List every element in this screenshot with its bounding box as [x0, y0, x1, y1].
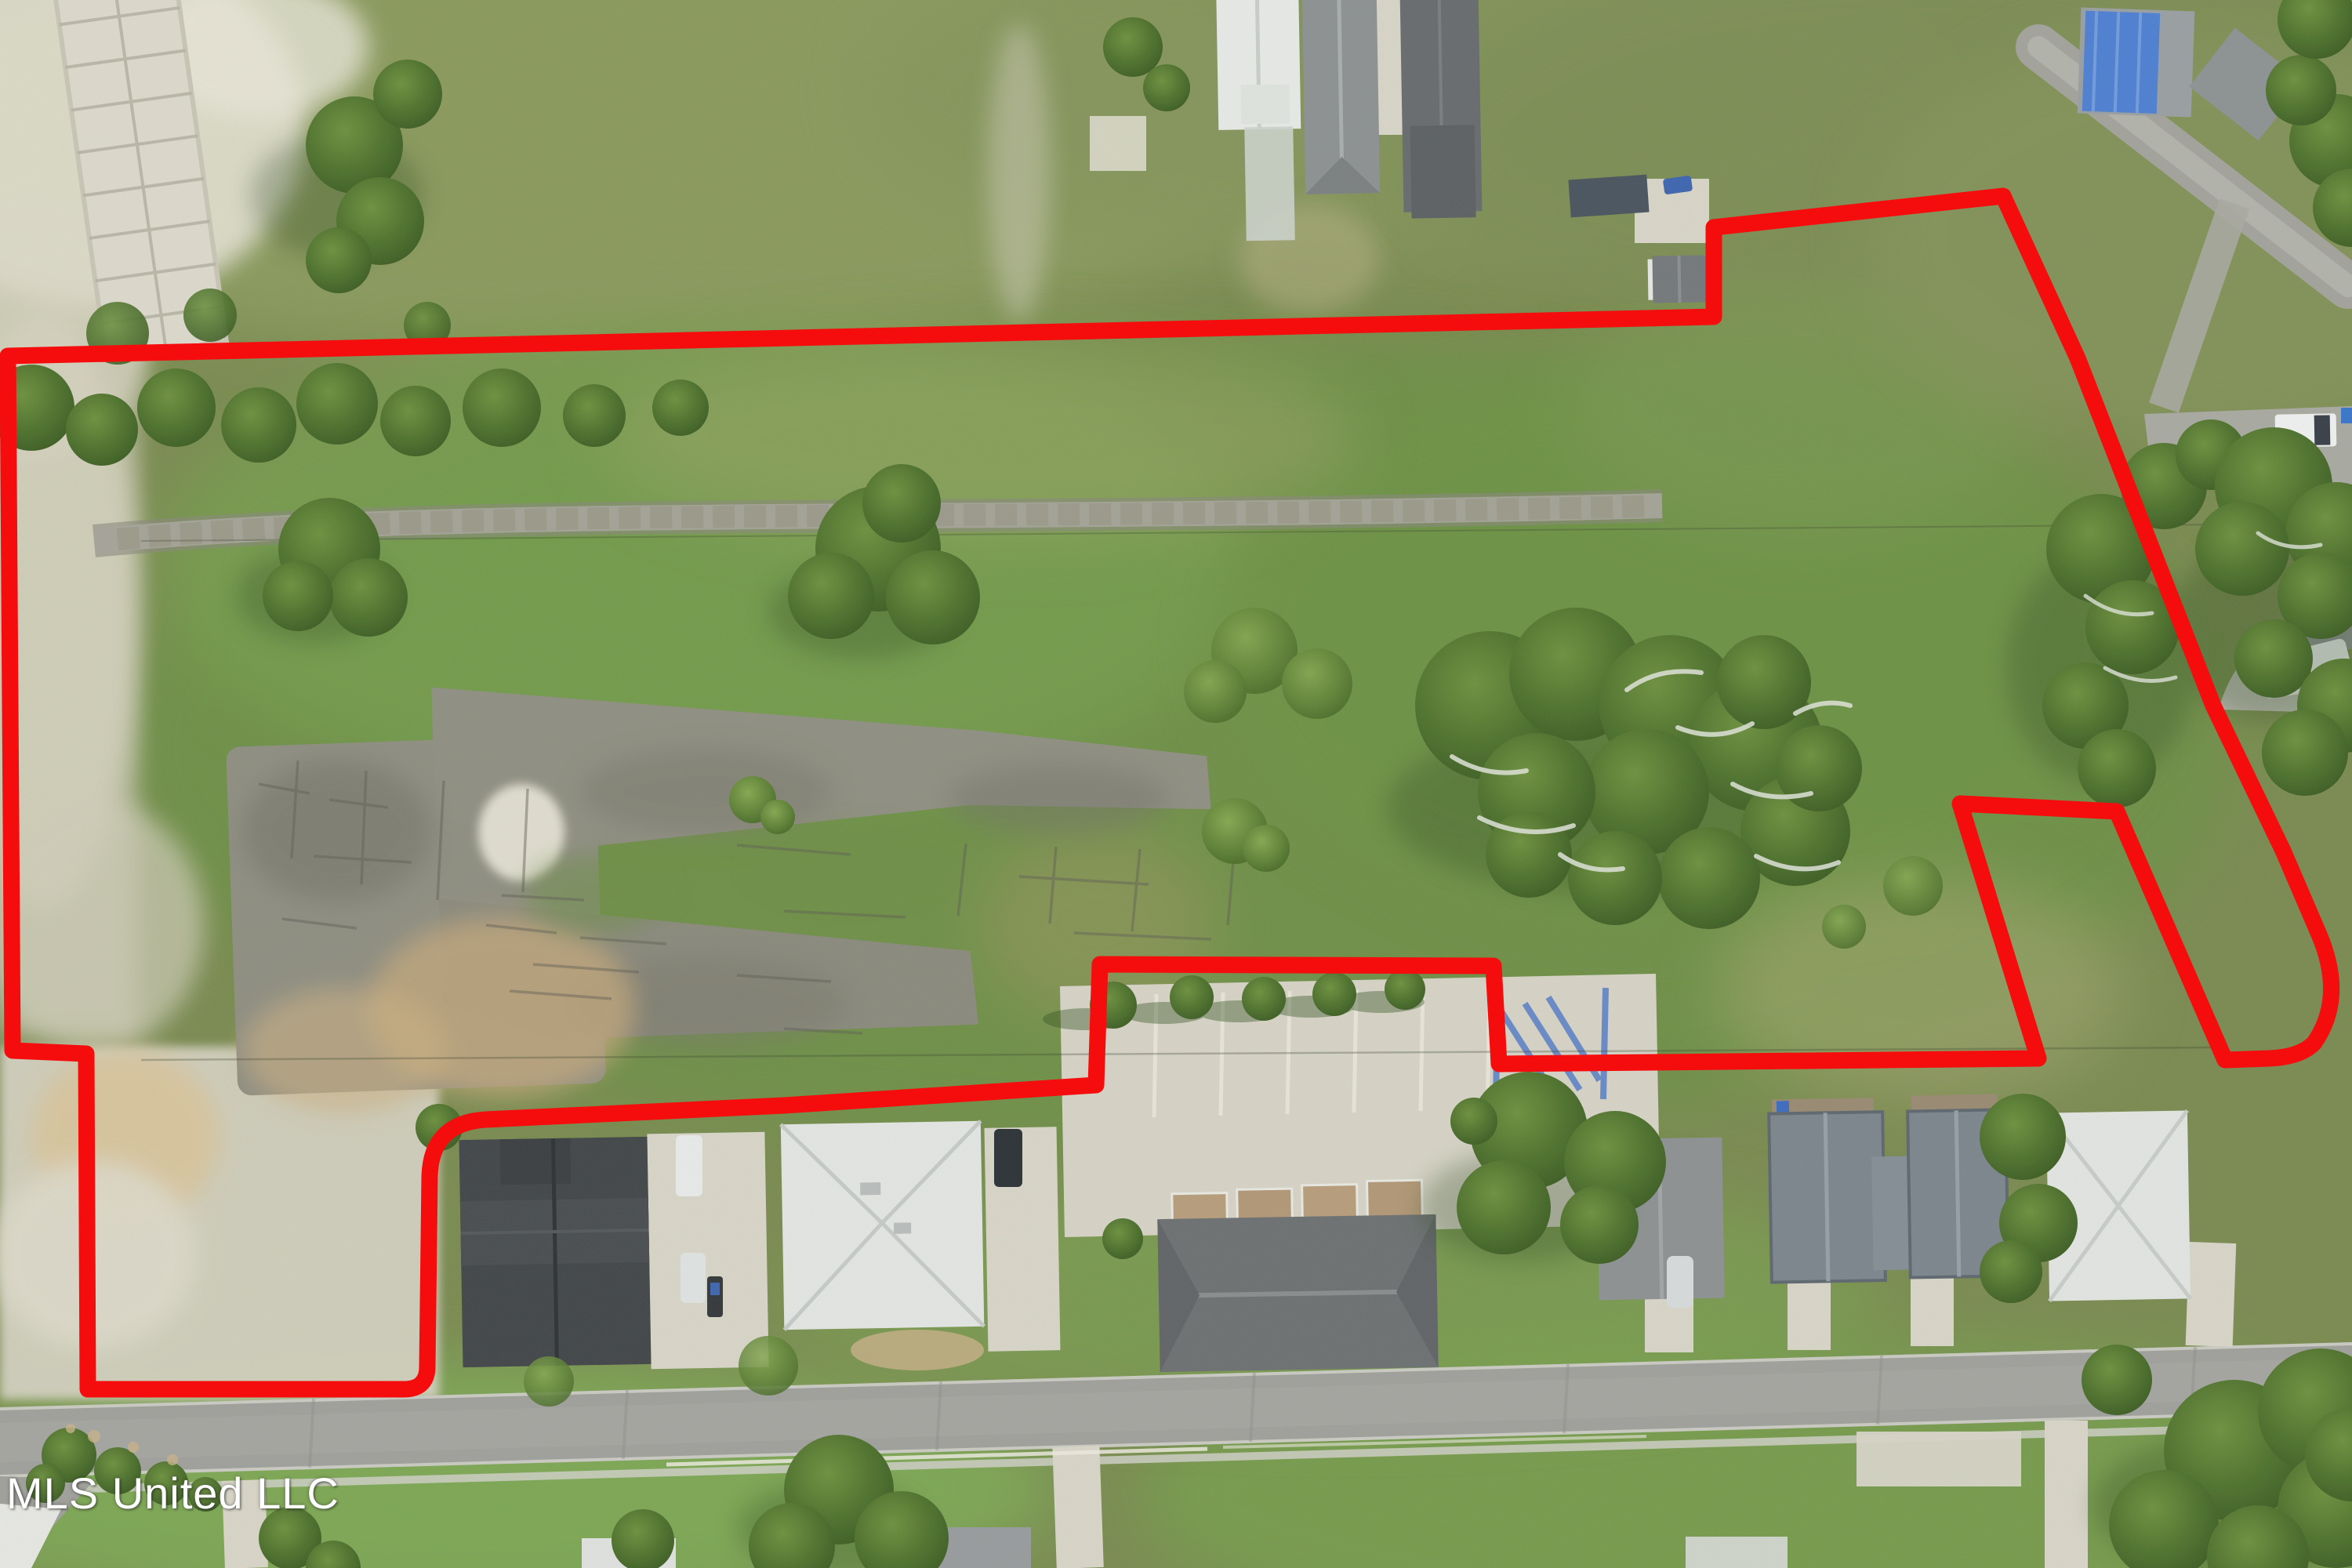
watermark: MLS United LLC	[6, 1468, 339, 1519]
aerial-photo: MLS United LLC	[0, 0, 2352, 1568]
film-grain	[0, 0, 2352, 1568]
aerial-photo-canvas	[0, 0, 2352, 1568]
